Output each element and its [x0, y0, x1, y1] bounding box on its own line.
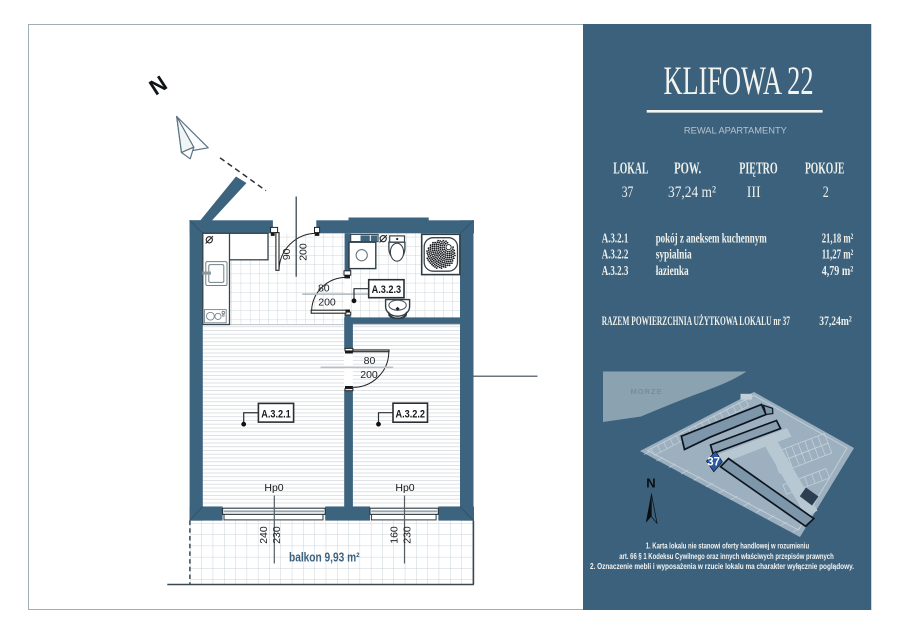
svg-text:MORZE: MORZE [631, 387, 663, 396]
svg-text:RAZEM POWIERZCHNIA UŻYTKOWA LO: RAZEM POWIERZCHNIA UŻYTKOWA LOKALU nr 37 [602, 313, 791, 328]
svg-text:200: 200 [318, 297, 336, 309]
svg-text:pokój z aneksem kuchennym: pokój z aneksem kuchennym [656, 231, 767, 246]
svg-text:N: N [145, 71, 172, 101]
svg-text:21,18 m²: 21,18 m² [822, 231, 854, 246]
svg-text:80: 80 [318, 283, 330, 295]
svg-text:REWAL APARTAMENTY: REWAL APARTAMENTY [684, 126, 787, 136]
svg-text:230: 230 [271, 526, 283, 544]
svg-text:11,27 m²: 11,27 m² [822, 247, 854, 262]
svg-text:200: 200 [298, 243, 310, 261]
svg-text:4,79 m²: 4,79 m² [822, 263, 854, 278]
svg-text:POKOJE: POKOJE [805, 159, 845, 178]
svg-text:240: 240 [258, 526, 270, 544]
svg-text:PIĘTRO: PIĘTRO [739, 159, 778, 178]
svg-text:A.3.2.3: A.3.2.3 [602, 263, 629, 278]
svg-text:A.3.2.2: A.3.2.2 [602, 247, 629, 262]
svg-text:1. Karta lokalu nie stanowi of: 1. Karta lokalu nie stanowi oferty handl… [646, 541, 809, 551]
svg-text:LOKAL: LOKAL [613, 159, 648, 178]
svg-text:37,24 m²: 37,24 m² [668, 184, 716, 201]
svg-text:230: 230 [401, 526, 413, 544]
svg-text:art. 66 § 1 Kodeksu Cywilnego: art. 66 § 1 Kodeksu Cywilnego oraz innyc… [619, 551, 834, 561]
svg-text:2. Oznaczenie mebli i wyposaże: 2. Oznaczenie mebli i wyposażenia w rzuc… [590, 561, 854, 571]
svg-text:N: N [646, 476, 655, 491]
svg-text:37,24m²: 37,24m² [819, 313, 851, 328]
svg-text:KLIFOWA 22: KLIFOWA 22 [664, 58, 814, 103]
svg-text:balkon 9,93 m²: balkon 9,93 m² [289, 550, 360, 565]
svg-text:łazienka: łazienka [656, 263, 689, 278]
svg-text:160: 160 [388, 526, 400, 544]
svg-text:A.3.2.3: A.3.2.3 [372, 284, 402, 296]
svg-text:80: 80 [364, 355, 376, 367]
svg-text:sypialnia: sypialnia [656, 247, 692, 262]
svg-text:90: 90 [281, 248, 293, 260]
svg-text:A.3.2.1: A.3.2.1 [261, 409, 291, 421]
svg-text:A.3.2.2: A.3.2.2 [396, 409, 426, 421]
svg-text:Hp0: Hp0 [264, 482, 283, 494]
svg-text:37: 37 [707, 456, 720, 468]
svg-text:Hp0: Hp0 [395, 482, 414, 494]
svg-text:2: 2 [823, 184, 829, 201]
svg-text:POW.: POW. [674, 159, 701, 178]
svg-text:37: 37 [622, 184, 634, 201]
svg-text:200: 200 [360, 369, 378, 381]
svg-text:III: III [747, 184, 761, 201]
svg-text:A.3.2.1: A.3.2.1 [602, 231, 629, 246]
